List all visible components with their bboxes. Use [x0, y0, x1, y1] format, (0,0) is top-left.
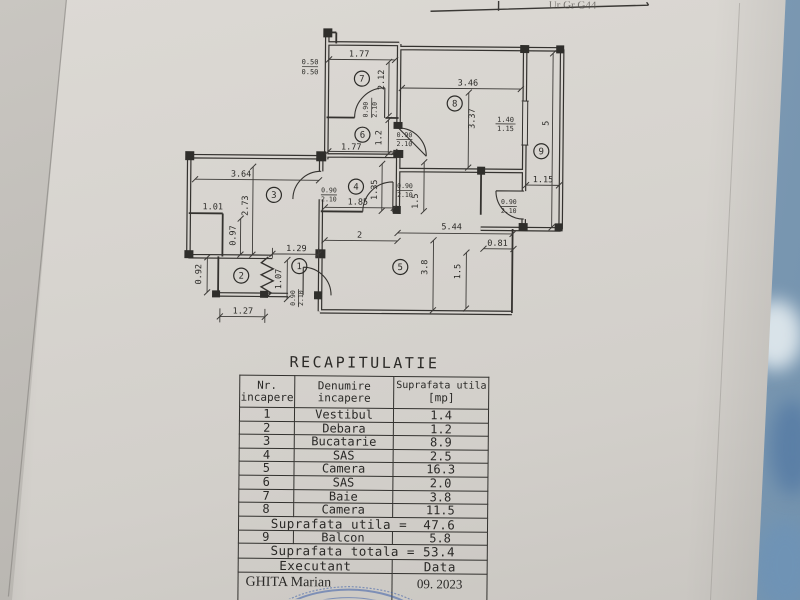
dimension-label: 1.5	[453, 264, 463, 279]
dimension-label: 1.85	[348, 198, 369, 208]
svg-text:8: 8	[452, 99, 458, 109]
door-arcs	[292, 87, 525, 297]
window-size-label: 1.40	[497, 116, 514, 124]
door-size-label: 2.10	[396, 140, 412, 148]
door-size-label: 2.10	[297, 290, 305, 306]
header-denumire: Denumire incapere	[294, 376, 394, 409]
execution-date: 09. 2023	[392, 573, 487, 600]
door-size-label: 0.90	[321, 186, 337, 194]
dimension-label: 1.27	[233, 307, 254, 317]
dimension-lines	[194, 50, 560, 325]
room-circle: 3	[266, 187, 281, 202]
total-row: Suprafata totala = 53.4	[238, 544, 487, 560]
header-nr: Nr. incapere	[240, 375, 295, 407]
subtotal-value: 47.6	[423, 517, 455, 532]
dimension-label: 0.50	[302, 58, 319, 66]
dimension-label: 1.5	[411, 193, 421, 208]
room-circle: 7	[354, 71, 369, 86]
recapitulation-table: Nr. incapere Denumire incapere Suprafata…	[237, 375, 489, 600]
dimension-label: 2.12	[377, 70, 387, 91]
door-size-label: 0.90	[362, 102, 370, 118]
subtotal-row: Suprafata utila = 47.6	[238, 516, 487, 532]
dimension-label: 0.50	[302, 68, 319, 76]
dimension-ticks	[191, 47, 563, 322]
svg-text:4: 4	[353, 183, 359, 193]
signature-row: GHITA Marian 09. 2023	[238, 572, 487, 600]
svg-text:9: 9	[539, 147, 545, 157]
wall-piers	[184, 27, 564, 301]
zigzag-wall-symbol	[261, 257, 273, 296]
dimension-labels: 1.77 3.46 3.64 1.01 1.85 2 5.44 0.81 1.2…	[194, 48, 555, 319]
door-size-label: 2.10	[501, 207, 517, 215]
dimension-label: 3.64	[231, 170, 252, 180]
svg-text:7: 7	[359, 75, 365, 85]
room-circle: 6	[355, 127, 370, 142]
window-symbol	[521, 101, 528, 145]
door-size-label: 0.90	[397, 182, 413, 190]
dimension-label: 5.44	[441, 222, 462, 232]
svg-text:2: 2	[238, 272, 244, 282]
subtotal-label: Suprafata utila =	[271, 516, 408, 532]
svg-text:Ur Gr G44: Ur Gr G44	[549, 0, 597, 12]
document-content: RECAPITULATIE Nr. incapere Denumire inca…	[0, 0, 800, 600]
dimension-label: 3.37	[467, 108, 477, 129]
dimension-label: 1.29	[286, 244, 307, 254]
dimension-label: 0.97	[228, 225, 238, 246]
dimension-label: 1.35	[370, 179, 380, 200]
door-size-labels: 0.90 2.10 0.90 2.10 0.90 2.10 0.90 2.10 …	[289, 101, 518, 308]
dimension-label: 2	[357, 231, 362, 241]
recap-title: RECAPITULATIE	[239, 353, 489, 373]
dimension-label: 2.73	[241, 195, 251, 216]
dimension-label: 1.77	[341, 142, 362, 152]
svg-text:5: 5	[398, 263, 404, 273]
svg-text:1: 1	[297, 262, 303, 272]
data-label: Data	[392, 559, 487, 574]
door-size-label: 2.10	[321, 195, 337, 203]
room-circle: 2	[234, 268, 249, 283]
dimension-label: 0.81	[487, 239, 508, 249]
dimension-label: 3.46	[458, 78, 479, 88]
total-value: 53.4	[423, 545, 455, 560]
executant-label: Executant	[238, 558, 392, 573]
door-size-label: 2.10	[371, 102, 379, 118]
dimension-label: 5	[542, 121, 552, 126]
executant-name: GHITA Marian	[238, 572, 393, 600]
svg-text:3: 3	[271, 191, 277, 201]
room-circle: 1	[292, 259, 307, 274]
total-label: Suprafata totala =	[270, 544, 415, 560]
table-header-row: Nr. incapere Denumire incapere Suprafata…	[240, 375, 489, 409]
photographed-document: RECAPITULATIE Nr. incapere Denumire inca…	[0, 0, 800, 600]
plan-walls-main	[186, 31, 562, 313]
room-circle: 5	[393, 259, 408, 274]
dimension-label: 1.07	[274, 269, 284, 290]
door-size-label: 0.90	[289, 290, 297, 306]
door-size-label: 0.90	[501, 198, 517, 206]
svg-text:6: 6	[360, 131, 366, 141]
dimension-label: 3.8	[420, 259, 430, 274]
label-divider-lines	[298, 67, 518, 309]
dimension-label: 1.01	[203, 202, 224, 212]
plan-walls-partition	[188, 31, 514, 313]
dimension-label: 0.92	[194, 264, 204, 285]
room-circle: 9	[534, 144, 549, 159]
room-circles: 1 2 3 4 5 6 7 8 9	[234, 70, 550, 286]
dimension-label: 1.2	[374, 130, 384, 145]
room-circle: 4	[348, 179, 363, 194]
room-circle: 8	[447, 96, 462, 111]
door-size-label: 2.10	[397, 191, 413, 199]
header-suprafata: Suprafata utila [mp]	[394, 376, 489, 409]
dimension-label: 1.15	[533, 175, 554, 185]
window-size-label: 1.15	[497, 125, 514, 133]
title-block-fragment: Ur Gr G44	[431, 0, 649, 13]
door-size-label: 0.90	[397, 131, 413, 139]
dimension-label: 1.77	[349, 50, 370, 60]
